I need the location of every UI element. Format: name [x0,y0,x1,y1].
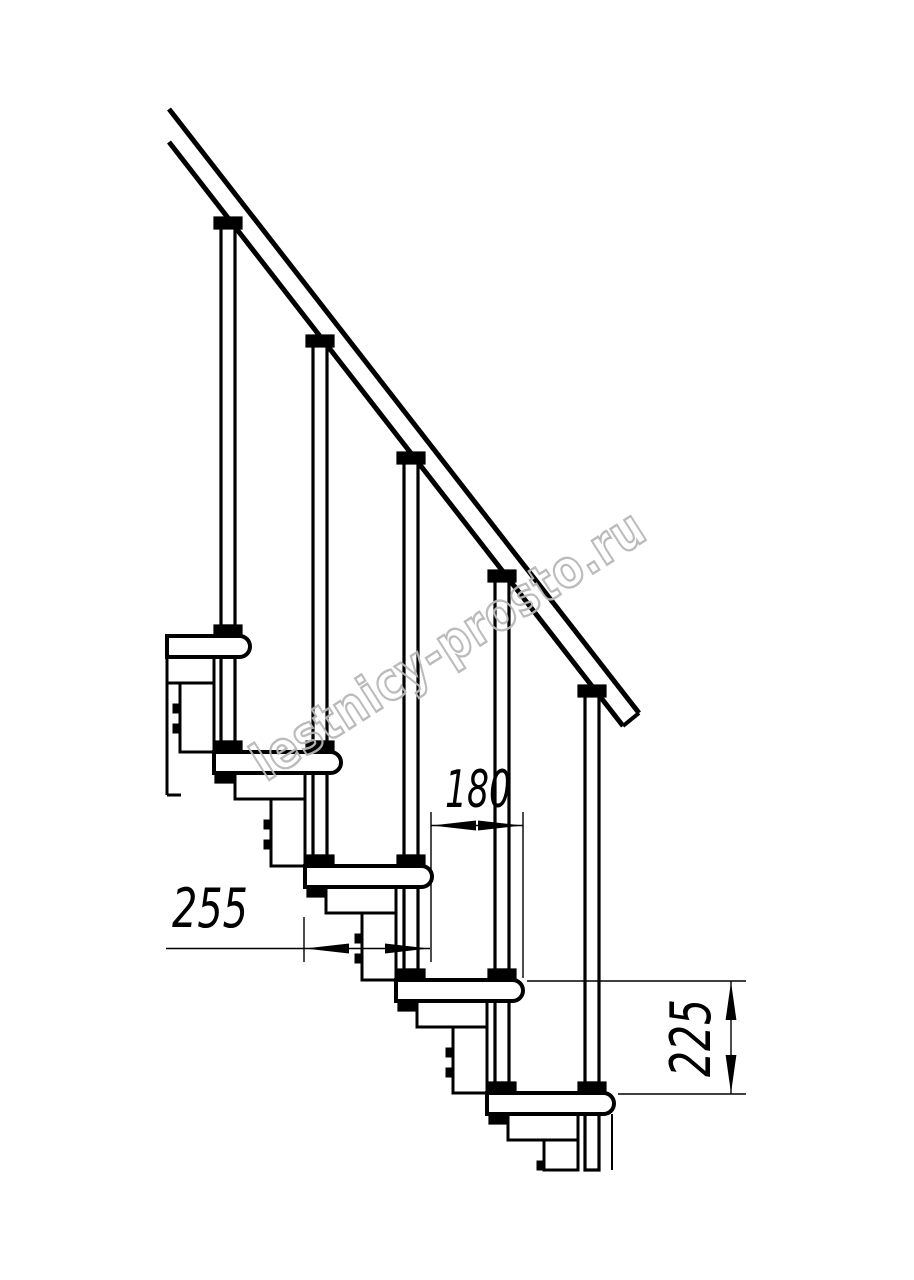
handrail-end-cap [623,713,639,726]
module-sleeve [167,657,214,683]
dimension-value-255: 255 [172,877,248,940]
module-column [180,683,214,752]
module-bolt [537,1161,545,1170]
module-sleeve [508,1114,578,1140]
rod-tube [585,696,599,1083]
support-module-5 [508,1114,578,1170]
arrowhead-left [305,944,349,954]
module-column [271,799,305,866]
module-bolt [446,1068,454,1077]
module-bolt [173,724,181,733]
support-module-3 [326,887,396,980]
support-module-1 [167,657,214,752]
tread-1 [167,636,250,657]
baluster-rod-1 [215,218,241,782]
rod-tube [404,887,418,970]
tread-5 [487,1093,614,1114]
module-bolt [264,820,272,829]
staircase-drawing-canvas: 255 180 225 lestnicy-prosto.ru [0,0,914,1280]
module-sleeve [417,1001,487,1027]
dimension-value-180: 180 [445,760,511,820]
module-sleeve [326,887,396,913]
rod-tube [585,1114,599,1170]
module-bolt [264,840,272,849]
arrowhead-down [726,1055,737,1093]
tread-3 [305,866,432,887]
module-bolt [355,934,363,943]
arrowhead-left [432,821,476,831]
rod-tube [313,773,327,856]
baluster-rod-4 [489,571,515,1123]
dimension-step-rise: 225 [527,981,746,1094]
support-module-4 [417,1001,487,1093]
dimension-value-225: 225 [659,999,724,1077]
module-bolt [446,1048,454,1057]
rod-tube [221,657,235,742]
baluster-rod-3 [398,453,424,1010]
baluster-rod-2 [307,336,333,896]
module-bolt [173,704,181,713]
module-column [544,1140,578,1170]
arrowhead-up [726,982,737,1020]
module-bolt [355,954,363,963]
tread-4 [396,980,523,1001]
rod-tube [221,228,235,626]
module-column [453,1027,487,1093]
rod-tube [313,346,327,742]
rod-tube [495,1001,509,1083]
